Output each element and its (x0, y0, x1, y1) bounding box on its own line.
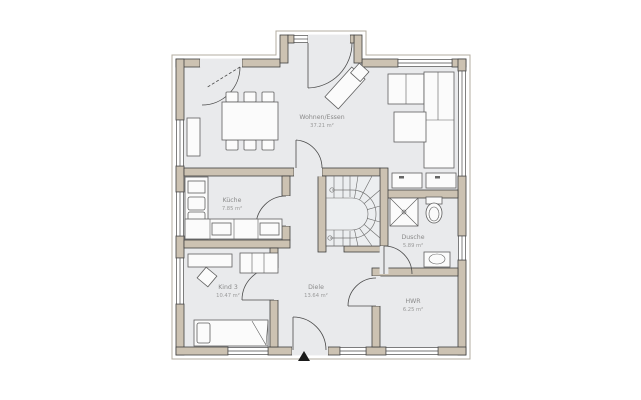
room-area-hwr: 6.25 m² (403, 307, 423, 313)
toilet (426, 197, 442, 223)
dining-chair (226, 92, 238, 102)
room-area-diele: 13.64 m² (304, 293, 328, 299)
window-bottom-hwr (386, 348, 438, 355)
pillow (197, 323, 210, 343)
sideboard (187, 118, 200, 156)
room-label-wohnen-essen: Wohnen/Essen (299, 114, 344, 121)
window-right-dusche (459, 236, 466, 260)
dishwasher (260, 223, 279, 235)
window-bottom-kind3 (228, 348, 268, 355)
window-bottom-diele (340, 348, 366, 355)
room-label-dusche: Dusche (401, 234, 424, 241)
dining-area (222, 92, 278, 150)
desk (188, 254, 232, 267)
room-area-dusche: 5.89 m² (403, 243, 423, 249)
window-left-kitchen (177, 192, 184, 236)
window-right-living (459, 71, 466, 176)
dining-chair (244, 92, 256, 102)
room-label-diele: Diele (308, 284, 324, 291)
dining-chair (226, 140, 238, 150)
staircase (326, 176, 380, 246)
window-bump-out (294, 36, 308, 43)
dining-chair (262, 92, 274, 102)
dining-chair (244, 140, 256, 150)
window-left-dining (177, 120, 184, 166)
washbasin (424, 252, 450, 267)
dining-chair (262, 140, 274, 150)
room-label-kueche: Küche (223, 197, 242, 204)
room-area-kind-3: 10.47 m² (216, 293, 240, 299)
floor-plan-canvas: Wohnen/Essen 37.21 m² Küche 7.85 m² Kind… (0, 0, 641, 400)
room-label-hwr: HWR (405, 298, 421, 305)
shower (390, 198, 418, 226)
window-left-kind3 (177, 258, 184, 304)
window-top-right (398, 60, 452, 67)
room-label-kind-3: Kind 3 (218, 284, 238, 291)
floor-plan: Wohnen/Essen 37.21 m² Küche 7.85 m² Kind… (0, 0, 641, 400)
coffee-table (394, 112, 426, 142)
cooktop (188, 181, 205, 193)
kitchen-sink (188, 197, 205, 210)
room-area-kueche: 7.85 m² (222, 206, 242, 212)
room-area-wohnen-essen: 37.21 m² (310, 123, 334, 129)
oven (212, 223, 231, 235)
dining-table (222, 102, 278, 140)
wardrobe (240, 253, 278, 273)
bed (194, 320, 268, 346)
